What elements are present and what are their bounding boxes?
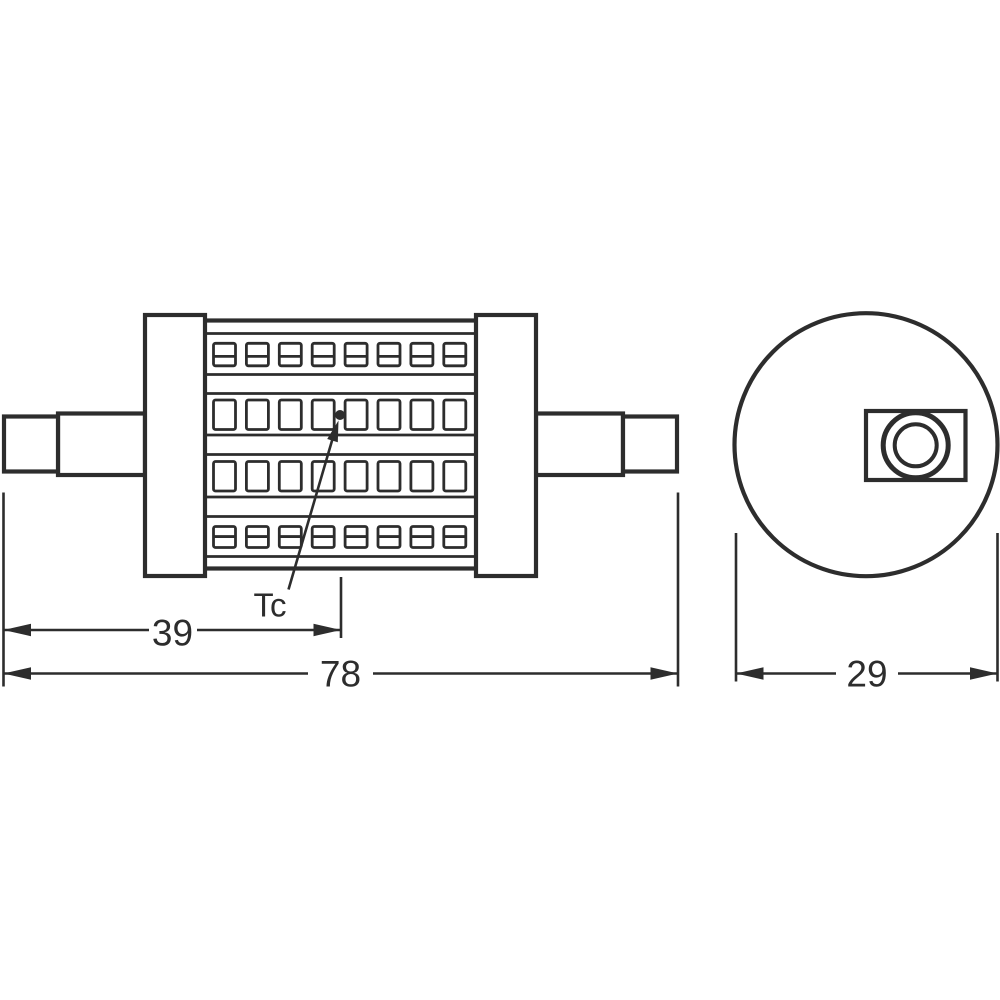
led-chip: [246, 462, 268, 492]
end-view: [735, 313, 998, 576]
led-chip: [312, 462, 334, 492]
contact-pin-right: [623, 417, 677, 472]
led-chip: [345, 400, 367, 430]
base-step-left: [58, 414, 145, 476]
contact-pin-left: [4, 417, 58, 472]
led-chip: [279, 343, 301, 366]
led-chip: [378, 343, 400, 366]
led-chip: [214, 400, 236, 430]
end-plate-left: [145, 315, 205, 576]
led-chip: [378, 400, 400, 430]
led-chip: [444, 400, 466, 430]
led-chip: [246, 343, 268, 366]
dim-78-arrow-left: [4, 667, 32, 679]
side-view: [4, 315, 677, 590]
dim-39-arrow-right: [314, 624, 342, 636]
dim-29-arrow-right: [970, 667, 998, 679]
led-chip: [214, 462, 236, 492]
dim-78-arrow-right: [651, 667, 679, 679]
led-chip: [444, 343, 466, 366]
base-step-right: [536, 414, 623, 476]
dim-39-arrow-left: [4, 624, 32, 636]
dim-39-label: 39: [152, 613, 193, 654]
led-chip: [411, 462, 433, 492]
led-chip: [279, 400, 301, 430]
led-chip: [444, 462, 466, 492]
dim-78-label: 78: [320, 654, 361, 695]
lamp-tube-body: [196, 321, 485, 569]
led-chip: [345, 462, 367, 492]
drawing-svg: Tc 39 78 29: [0, 0, 1000, 1000]
led-chip: [411, 343, 433, 366]
led-chip: [378, 462, 400, 492]
led-chip: [246, 400, 268, 430]
led-chip: [214, 343, 236, 366]
dim-29-label: 29: [846, 654, 887, 695]
lamp-dimension-drawing: Tc 39 78 29: [0, 0, 1000, 1000]
led-chip: [312, 343, 334, 366]
led-chip: [411, 400, 433, 430]
end-plate-right: [476, 315, 536, 576]
tc-label: Tc: [254, 587, 287, 624]
tc-point-dot: [335, 410, 345, 420]
led-chip: [279, 462, 301, 492]
led-chip: [345, 343, 367, 366]
dim-29-arrow-left: [736, 667, 764, 679]
led-chip: [312, 400, 334, 430]
